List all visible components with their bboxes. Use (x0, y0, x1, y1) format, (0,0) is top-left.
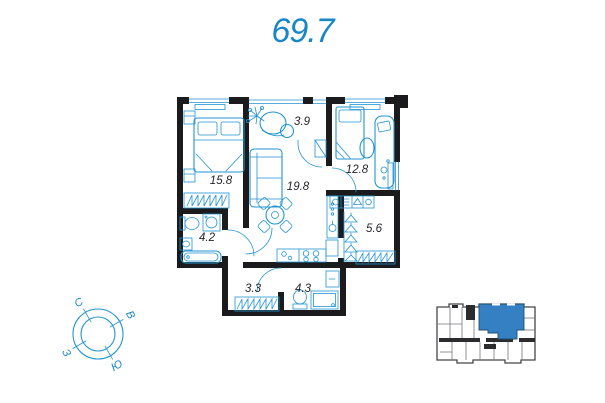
room-label-bathroom-2: 4.3 (295, 283, 312, 295)
nightstand-icon (184, 111, 195, 182)
room-label-living-kitchen: 19.8 (287, 181, 310, 193)
compass-south-label: Ю (109, 358, 125, 374)
compass-east-label: В (123, 309, 137, 321)
sink-icon (326, 271, 339, 287)
compass-north-label: С (73, 296, 86, 310)
compass-rose: С В З Ю (59, 296, 137, 374)
room-label-balcony: 3.9 (294, 116, 311, 128)
compass-west-label: З (59, 347, 73, 359)
bathtub-icon (181, 251, 221, 263)
floor-plan: 15.8 3.9 19.8 12.8 4.2 5.6 3.3 4.3 (177, 95, 408, 316)
bedroom-furniture (184, 111, 244, 208)
building-key-plan (437, 304, 535, 364)
room-label-hallway: 3.3 (245, 283, 262, 295)
hangers-icon (344, 212, 357, 262)
wardrobe-icon (184, 193, 229, 208)
room-label-bedroom: 15.8 (210, 175, 233, 187)
dining-table-icon (257, 197, 292, 233)
balcony-furniture (246, 106, 293, 137)
wardrobe-icon (235, 297, 279, 311)
appliance-row-icon (330, 196, 374, 208)
bed-icon (194, 118, 244, 172)
total-area-title: 69.7 (0, 12, 605, 51)
room-label-bedroom-2: 12.8 (346, 164, 369, 176)
living-kitchen-furniture (250, 140, 338, 262)
plan-canvas: 15.8 3.9 19.8 12.8 4.2 5.6 3.3 4.3 С В З… (0, 0, 605, 403)
shower-icon (311, 291, 338, 309)
washing-machine-icon (203, 214, 220, 231)
room-label-bathroom: 4.2 (199, 232, 216, 244)
floorplan-page: 69.7 (0, 0, 605, 403)
lounge-chair-icon (260, 112, 294, 138)
fridge-icon (315, 140, 326, 157)
hallway-furniture (235, 297, 279, 311)
desk-chair-icon (360, 138, 374, 158)
stove-icon (277, 249, 326, 262)
desk-icon (375, 116, 394, 188)
plant-icon (246, 106, 264, 124)
room-label-dressing-room: 5.6 (366, 223, 383, 235)
